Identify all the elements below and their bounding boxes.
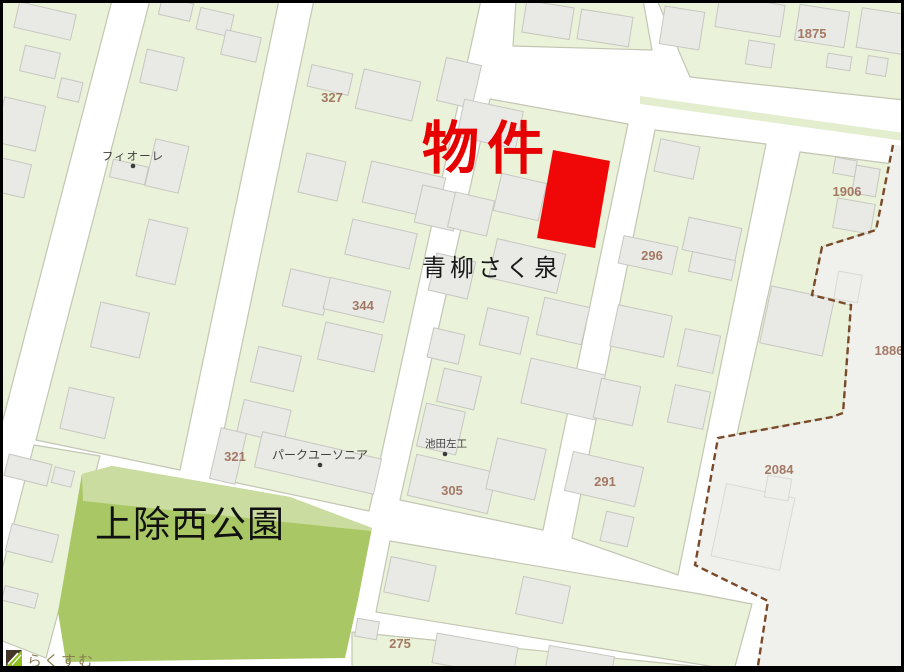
rakusumu-logo-icon bbox=[6, 650, 22, 666]
park-name-label: 上除西公園 bbox=[95, 504, 285, 545]
building bbox=[856, 8, 904, 55]
parcel-305: 305 bbox=[441, 483, 463, 498]
building bbox=[667, 385, 710, 430]
building bbox=[57, 78, 83, 102]
parcel-291: 291 bbox=[594, 474, 616, 489]
building bbox=[600, 511, 634, 547]
building bbox=[834, 271, 862, 303]
building bbox=[593, 378, 640, 425]
building bbox=[659, 6, 704, 50]
building bbox=[764, 475, 791, 501]
parcel-275: 275 bbox=[389, 636, 411, 651]
parcel-296: 296 bbox=[641, 248, 663, 263]
parcel-2084: 2084 bbox=[765, 462, 795, 477]
property-map-frame: 物件 青柳さく泉 上除西公園 フィオーレ パークユーソニア 池田左工 327 3… bbox=[0, 0, 904, 672]
parcel-344: 344 bbox=[352, 298, 374, 313]
place-label-aoyagi: 青柳さく泉 bbox=[422, 255, 562, 282]
building bbox=[677, 329, 720, 374]
building bbox=[833, 198, 876, 234]
parcel-1906: 1906 bbox=[833, 184, 862, 199]
parcel-1886: 1886 bbox=[875, 343, 904, 358]
building bbox=[355, 618, 380, 640]
building bbox=[866, 56, 889, 77]
poi-dot bbox=[318, 463, 323, 468]
place-label-park-yusonia: パークユーソニア bbox=[272, 448, 368, 462]
poi-dot bbox=[131, 164, 136, 169]
parcel-1875: 1875 bbox=[798, 26, 827, 41]
poi-dot bbox=[443, 452, 448, 457]
place-label-ikeda-sakou: 池田左工 bbox=[425, 437, 467, 450]
building bbox=[486, 438, 546, 500]
building bbox=[522, 0, 574, 39]
building bbox=[833, 157, 857, 177]
building bbox=[427, 328, 465, 364]
building bbox=[826, 53, 852, 71]
place-label-fiore: フィオーレ bbox=[102, 150, 164, 163]
building bbox=[760, 286, 835, 356]
building bbox=[745, 40, 774, 68]
property-map: 物件 青柳さく泉 上除西公園 フィオーレ パークユーソニア 池田左工 327 3… bbox=[0, 0, 904, 672]
building bbox=[298, 153, 346, 201]
property-title-label: 物件 bbox=[422, 117, 552, 181]
parcel-321: 321 bbox=[224, 449, 246, 464]
parcel-327: 327 bbox=[321, 90, 343, 105]
